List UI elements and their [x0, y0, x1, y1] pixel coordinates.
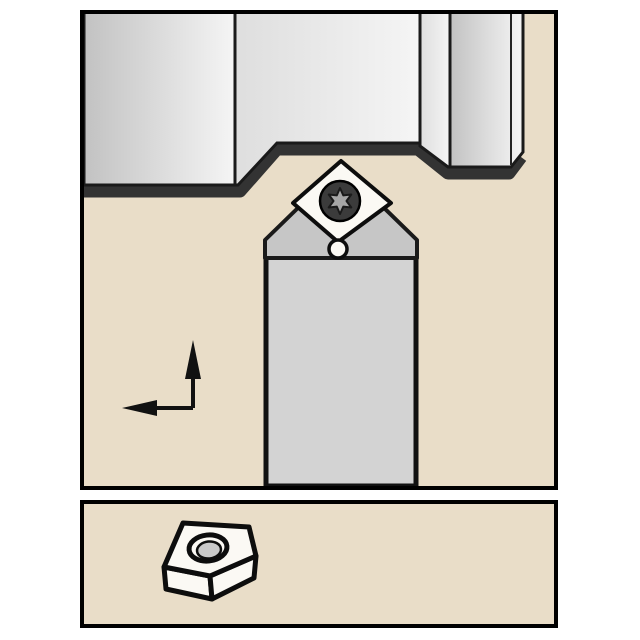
catalog-illustration — [0, 0, 640, 640]
turning-operation-diagram — [80, 10, 558, 490]
workpiece-face-left — [84, 12, 235, 185]
workpiece-face-chamfer — [420, 12, 450, 167]
preview-panel-background — [80, 500, 558, 628]
main-diagram-panel — [80, 10, 558, 490]
workpiece-face-right — [450, 12, 523, 167]
insert-tip-radius-icon — [329, 240, 347, 258]
holder-shank — [266, 256, 416, 486]
insert-preview-panel — [80, 500, 558, 628]
insert-3d-view — [80, 500, 558, 628]
